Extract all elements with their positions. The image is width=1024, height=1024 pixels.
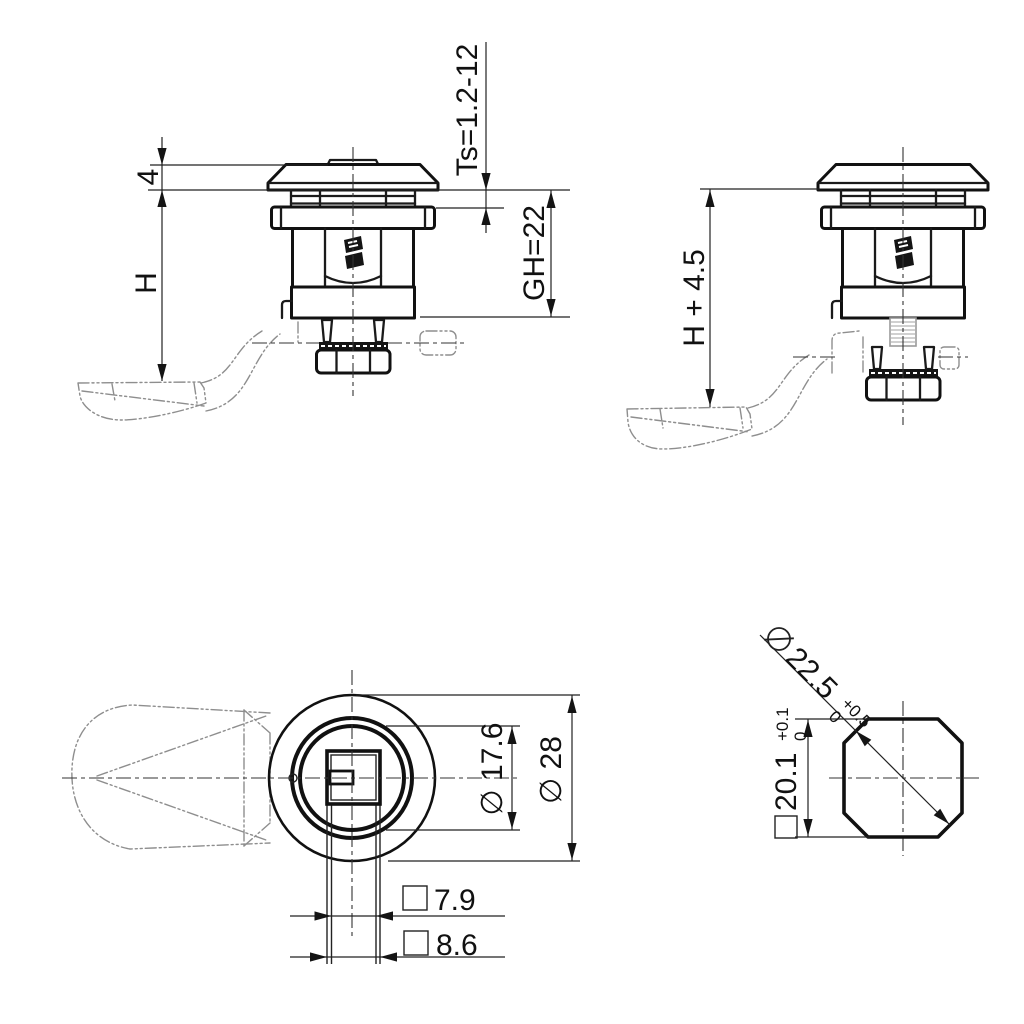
stem-leg-right <box>374 320 384 342</box>
view-side-extended: H + 4.5 <box>627 147 988 449</box>
stem-leg-right <box>924 347 934 369</box>
dim-grip-height-label: GH=22 <box>518 205 551 301</box>
square-symbol-icon <box>403 886 427 910</box>
handle-phantom <box>78 322 467 420</box>
dimensions-side-extended: H + 4.5 <box>678 189 820 407</box>
dim-cutout-width-label: 20.1 +0.1 0 <box>770 707 810 838</box>
dimensions-cutout: 22.5 +0.5 0 20.1 +0.1 0 <box>754 621 953 838</box>
dim-head-height-label: 4 <box>132 169 165 186</box>
diameter-symbol-icon <box>763 623 794 654</box>
dim-square-outer-label: 8.6 <box>436 929 478 962</box>
square-symbol-icon <box>404 931 428 955</box>
dim-cutout-diagonal-value: 22.5 <box>779 641 844 706</box>
stem-leg-left <box>872 347 882 369</box>
dim-square-inner-label: 7.9 <box>434 884 476 917</box>
technical-drawing-canvas: 4 H Ts=1.2-12 GH=22 <box>0 0 1024 1024</box>
square-symbol-icon <box>775 816 797 838</box>
pawl-phantom-right <box>940 347 959 369</box>
dim-flange-diameter-label: ∅ 17.6 <box>476 723 509 816</box>
view-panel-cutout: 22.5 +0.5 0 20.1 +0.1 0 <box>754 621 983 856</box>
dim-cutout-width-tol-upper: +0.1 <box>773 707 792 741</box>
stem-leg-left <box>322 320 332 342</box>
dim-height-h-label: H <box>130 272 163 294</box>
dim-head-diameter-label: ∅ 28 <box>535 736 568 804</box>
view-top-plan: ∅ 17.6 ∅ 28 7.9 8.6 <box>62 670 580 964</box>
dim-cutout-width-value: 20.1 <box>770 753 803 811</box>
dim-cutout-width-tol-lower: 0 <box>791 732 810 741</box>
dim-panel-thickness-label: Ts=1.2-12 <box>451 44 484 177</box>
dim-height-total-label: H + 4.5 <box>678 249 711 347</box>
handle-phantom <box>72 705 270 849</box>
technical-drawing-page: 4 H Ts=1.2-12 GH=22 <box>0 0 1024 1024</box>
view-side-compressed: 4 H Ts=1.2-12 GH=22 <box>78 42 570 420</box>
